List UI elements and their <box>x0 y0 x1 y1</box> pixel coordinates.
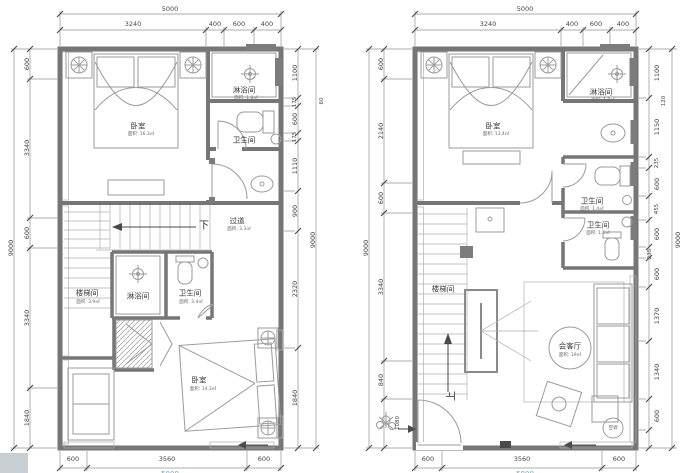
room-area: 面积: 1.5㎡ <box>586 230 610 236</box>
door-swing <box>212 164 247 199</box>
corridor-fixtures <box>209 158 273 203</box>
stairs-mid <box>96 205 212 250</box>
bedroom-door-swing <box>520 171 552 203</box>
interior-walls <box>60 49 281 203</box>
room-label-shower: 淋浴间 <box>233 85 256 96</box>
dim-label: 600 <box>613 455 625 463</box>
sink-area <box>601 124 625 142</box>
dim-label: 3340 <box>23 140 31 157</box>
dim-label: 600 <box>23 227 31 239</box>
left-plan <box>11 11 319 471</box>
room-label-bedroom: 卧室 <box>192 375 207 386</box>
room-label-stairwell: 楼梯间 <box>76 288 99 299</box>
up-arrow <box>444 333 452 344</box>
ceiling-fan-icon <box>535 52 561 78</box>
door-block <box>631 162 637 186</box>
dim-label: 1840 <box>23 410 31 427</box>
dim-label: 120 <box>661 96 667 107</box>
room-label-bedroom: 卧室 <box>486 121 501 132</box>
wall-hatch-strip <box>63 206 69 356</box>
dim-label: 400 <box>566 20 578 28</box>
room-label-shower: 淋浴间 <box>590 87 613 98</box>
room-label-toilet: 卫生间 <box>587 220 610 231</box>
down-arrow <box>112 223 122 231</box>
dim-label: 235 <box>654 158 660 169</box>
dim-label: 1840 <box>291 390 299 407</box>
sofa-cabinet <box>68 368 114 440</box>
dim-label: 9000 <box>7 240 15 257</box>
dim-label: 3560 <box>514 455 531 463</box>
dim-label: 600 <box>67 455 79 463</box>
tv-unit <box>465 290 538 372</box>
shower-room-mid <box>116 256 160 314</box>
room-area: 面积: 3.9㎡ <box>76 299 100 305</box>
door-swing <box>563 164 586 187</box>
dim-label: 3560 <box>159 455 176 463</box>
ceiling-fan-icon <box>180 52 206 78</box>
dim-label: 3240 <box>480 20 497 28</box>
dim-label: 600 <box>653 410 661 422</box>
room-area: 面积: 19㎡ <box>559 352 581 358</box>
threshold-block <box>500 441 511 448</box>
door-block <box>630 58 637 86</box>
room-area: 面积: 14.3㎡ <box>190 386 216 392</box>
room-area: 面积: 3.3㎡ <box>227 226 251 232</box>
up-label: 上 <box>443 391 458 401</box>
ceiling-fan-icon <box>66 52 92 78</box>
dim-label: 400 <box>209 20 221 28</box>
dim-label: 600 <box>653 178 661 190</box>
dim-label: 1150 <box>653 119 661 136</box>
dim-label: 3240 <box>125 20 142 28</box>
room-label-toilet: 卫生间 <box>179 288 202 299</box>
ac-label: 空调 <box>609 425 618 431</box>
dim-label: 900 <box>291 205 299 217</box>
dim-label: 600 <box>233 20 245 28</box>
dim-label: 1340 <box>653 364 661 381</box>
dim-label: 2140 <box>377 123 385 140</box>
dim-label: 400 <box>261 20 273 28</box>
door-block <box>275 58 282 86</box>
sink <box>251 176 273 192</box>
right-plan <box>366 11 677 471</box>
dim-label: 9000 <box>674 232 682 249</box>
door-block <box>631 120 637 144</box>
room-label-corridor: 过道 <box>230 216 245 227</box>
dim-label: 600 <box>377 58 385 70</box>
shower-head-icon <box>129 265 147 283</box>
dim-label: 600 <box>291 113 299 125</box>
sink <box>601 124 625 142</box>
shower-head-icon <box>241 65 259 83</box>
stool <box>536 381 581 426</box>
dim-label: 600 <box>590 20 602 28</box>
floor-plan-drawing: 5000 3240 400 600 400 9000 600 3340 600 … <box>0 0 694 473</box>
dim-label: 235 <box>647 249 653 260</box>
sofa <box>594 284 632 402</box>
dim-label: 1100 <box>653 65 661 82</box>
window-block <box>600 44 630 50</box>
entry-door <box>377 400 464 450</box>
dim-label: 60 <box>319 98 325 105</box>
room-area: 面积: 3.4㎡ <box>179 299 203 305</box>
bathroom-block-walls <box>563 157 636 268</box>
interior-walls <box>415 49 636 203</box>
room-area: 面积: 16.3㎡ <box>128 131 154 137</box>
ceiling-fan-icon <box>421 52 447 78</box>
dim-label: 840 <box>377 374 385 386</box>
dim-label: 1110 <box>291 158 299 175</box>
down-label: 下 <box>199 217 209 232</box>
bed-top <box>449 54 533 164</box>
dim-label: 9000 <box>309 232 317 249</box>
dim-label: 600 <box>377 192 385 204</box>
dim-label: 2320 <box>291 281 299 298</box>
winder-stairs <box>116 320 172 368</box>
dim-label: 3340 <box>23 310 31 327</box>
room-label-shower: 淋浴间 <box>127 291 150 302</box>
bench <box>463 151 520 164</box>
room-area: 面积: 13.4㎡ <box>483 131 509 137</box>
dim-label: 600 <box>23 58 31 70</box>
dim-label: 600 <box>653 268 661 280</box>
dim-label: 1370 <box>653 308 661 325</box>
room-label-toilet: 卫生间 <box>233 135 256 146</box>
dim-label: 600 <box>422 455 434 463</box>
dim-label: 1100 <box>291 65 299 82</box>
dim-label: 175 <box>292 132 298 143</box>
dim-label: 600 <box>653 228 661 240</box>
dim-label: 600 <box>258 455 270 463</box>
corner-artifact <box>0 453 28 473</box>
living-room-furniture <box>524 282 632 438</box>
room-label-toilet: 卫生间 <box>581 196 604 207</box>
left-plan-dimension-lines <box>11 11 319 471</box>
dim-label: 9000 <box>362 240 370 257</box>
plan-linework <box>0 0 694 473</box>
room-area: 面积: 1.8㎡ <box>234 95 258 101</box>
landing <box>476 208 504 232</box>
window-block <box>246 44 276 50</box>
door-swing <box>563 218 585 241</box>
dim-label: 400 <box>617 20 629 28</box>
room-area: 面积: 1.4㎡ <box>580 206 604 212</box>
dim-label: 175 <box>292 97 298 108</box>
dim-label: 3340 <box>377 279 385 296</box>
room-label-bedroom: 卧室 <box>131 121 146 132</box>
room-label-living: 会客厅 <box>559 341 582 352</box>
room-area: 面积: 1.8㎡ <box>591 97 615 103</box>
dim-label: 5000 <box>517 5 534 13</box>
dim-label: 1080 <box>395 416 401 430</box>
shower-head-icon <box>608 65 626 83</box>
dim-label: 455 <box>654 204 660 215</box>
radiator <box>108 180 164 195</box>
room-label-stairwell: 楼梯间 <box>432 284 455 295</box>
dimension-ticks <box>11 11 319 471</box>
plant-icon <box>377 412 396 430</box>
dim-label: 5000 <box>162 5 179 13</box>
